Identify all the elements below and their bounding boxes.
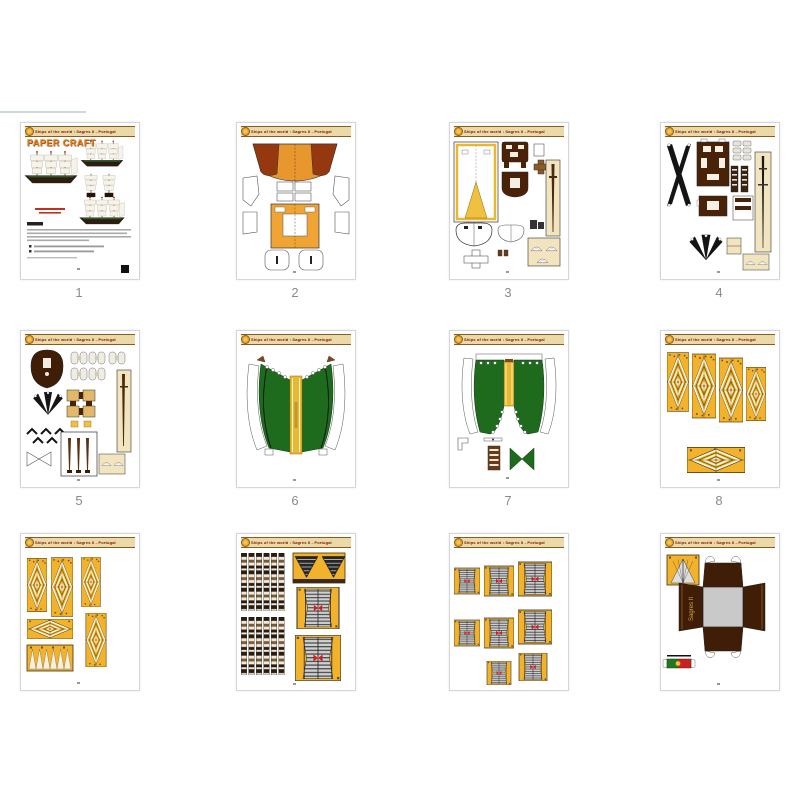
page-header: Ships of the world : Sagres II - Portuga… (454, 126, 564, 137)
page-thumbnail-10[interactable]: Ships of the world : Sagres II - Portuga… (236, 533, 356, 691)
page-header: Ships of the world : Sagres II - Portuga… (454, 537, 564, 548)
page-thumbnail-9[interactable]: Ships of the world : Sagres II - Portuga… (20, 533, 140, 691)
page-3-art (450, 138, 568, 278)
page-number: 2 (236, 285, 354, 300)
page-header-title: Ships of the world : Sagres II - Portuga… (464, 129, 545, 134)
sun-emblem-icon (455, 336, 462, 343)
page-cell-9: Ships of the world : Sagres II - Portuga… (20, 533, 138, 691)
page-number: 3 (449, 285, 567, 300)
page-number: 6 (236, 493, 354, 508)
page-6-art (237, 346, 355, 486)
page-thumbnail-2[interactable]: Ships of the world : Sagres II - Portuga… (236, 122, 356, 280)
page-thumbnail-12[interactable]: Ships of the world : Sagres II - Portuga… (660, 533, 780, 691)
page-header: Ships of the world : Sagres II - Portuga… (665, 126, 775, 137)
page-cell-12: Ships of the world : Sagres II - Portuga… (660, 533, 778, 691)
page-number: 5 (20, 493, 138, 508)
scan-artifact-line (0, 111, 86, 113)
page-header-title: Ships of the world : Sagres II - Portuga… (464, 540, 545, 545)
page-10-art (237, 549, 355, 689)
page-thumbnail-6[interactable]: Ships of the world : Sagres II - Portuga… (236, 330, 356, 488)
page-cell-5: Ships of the world : Sagres II - Portuga… (20, 330, 138, 508)
page-header: Ships of the world : Sagres II - Portuga… (241, 334, 351, 345)
page-header: Ships of the world : Sagres II - Portuga… (241, 537, 351, 548)
sun-emblem-icon (455, 128, 462, 135)
page-header-title: Ships of the world : Sagres II - Portuga… (251, 337, 332, 342)
page-header-title: Ships of the world : Sagres II - Portuga… (35, 129, 116, 134)
page-header: Ships of the world : Sagres II - Portuga… (454, 334, 564, 345)
page-9-art (21, 549, 139, 689)
page-thumbnail-4[interactable]: Ships of the world : Sagres II - Portuga… (660, 122, 780, 280)
page-cell-1: Ships of the world : Sagres II - Portuga… (20, 122, 138, 300)
page-header: Ships of the world : Sagres II - Portuga… (25, 126, 135, 137)
page-thumbnail-7[interactable]: Ships of the world : Sagres II - Portuga… (449, 330, 569, 488)
sun-emblem-icon (26, 539, 33, 546)
page-cell-7: Ships of the world : Sagres II - Portuga… (449, 330, 567, 508)
page-header: Ships of the world : Sagres II - Portuga… (665, 334, 775, 345)
page-number: 8 (660, 493, 778, 508)
page-cell-2: Ships of the world : Sagres II - Portuga… (236, 122, 354, 300)
sun-emblem-icon (242, 128, 249, 135)
page-1-art (21, 138, 139, 278)
page-header: Ships of the world : Sagres II - Portuga… (25, 537, 135, 548)
page-header-title: Ships of the world : Sagres II - Portuga… (464, 337, 545, 342)
cover-logo: PAPER CRAFT (27, 138, 96, 148)
page-header-title: Ships of the world : Sagres II - Portuga… (251, 540, 332, 545)
page-11-art (450, 549, 568, 689)
sun-emblem-icon (666, 336, 673, 343)
page-8-art (661, 346, 779, 486)
page-thumbnail-5[interactable]: Ships of the world : Sagres II - Portuga… (20, 330, 140, 488)
page-header-title: Ships of the world : Sagres II - Portuga… (675, 540, 756, 545)
page-header: Ships of the world : Sagres II - Portuga… (665, 537, 775, 548)
page-cell-8: Ships of the world : Sagres II - Portuga… (660, 330, 778, 508)
page-header: Ships of the world : Sagres II - Portuga… (241, 126, 351, 137)
page-thumbnail-1[interactable]: Ships of the world : Sagres II - Portuga… (20, 122, 140, 280)
sun-emblem-icon (455, 539, 462, 546)
stand-label: Sagres II (689, 597, 695, 621)
page-thumbnail-8[interactable]: Ships of the world : Sagres II - Portuga… (660, 330, 780, 488)
page-number: 1 (20, 285, 138, 300)
page-cell-10: Ships of the world : Sagres II - Portuga… (236, 533, 354, 691)
page-7-art (450, 346, 568, 486)
page-number: 7 (449, 493, 567, 508)
page-2-art (237, 138, 355, 278)
page-cell-3: Ships of the world : Sagres II - Portuga… (449, 122, 567, 300)
sun-emblem-icon (242, 539, 249, 546)
page-cell-11: Ships of the world : Sagres II - Portuga… (449, 533, 567, 691)
page-5-art (21, 346, 139, 486)
sun-emblem-icon (242, 336, 249, 343)
page-header: Ships of the world : Sagres II - Portuga… (25, 334, 135, 345)
sun-emblem-icon (26, 336, 33, 343)
sun-emblem-icon (666, 539, 673, 546)
sun-emblem-icon (26, 128, 33, 135)
sun-emblem-icon (666, 128, 673, 135)
page-12-art: Sagres II (661, 549, 779, 689)
page-header-title: Ships of the world : Sagres II - Portuga… (675, 337, 756, 342)
page-cell-4: Ships of the world : Sagres II - Portuga… (660, 122, 778, 300)
page-header-title: Ships of the world : Sagres II - Portuga… (35, 337, 116, 342)
page-4-art (661, 138, 779, 278)
page-header-title: Ships of the world : Sagres II - Portuga… (675, 129, 756, 134)
page-cell-6: Ships of the world : Sagres II - Portuga… (236, 330, 354, 508)
page-header-title: Ships of the world : Sagres II - Portuga… (251, 129, 332, 134)
page-header-title: Ships of the world : Sagres II - Portuga… (35, 540, 116, 545)
page-thumbnail-3[interactable]: Ships of the world : Sagres II - Portuga… (449, 122, 569, 280)
page-thumbnail-11[interactable]: Ships of the world : Sagres II - Portuga… (449, 533, 569, 691)
page-number: 4 (660, 285, 778, 300)
